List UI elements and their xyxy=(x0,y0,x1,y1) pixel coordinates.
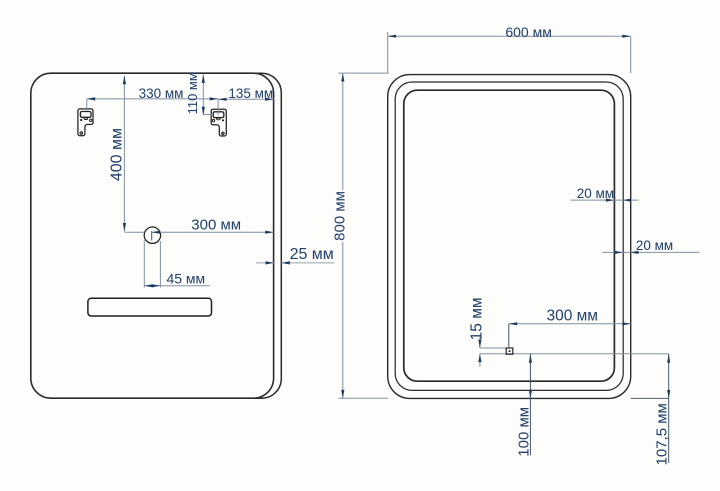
svg-text:300 мм: 300 мм xyxy=(191,217,241,234)
svg-text:135 мм: 135 мм xyxy=(228,86,273,101)
svg-text:800 мм: 800 мм xyxy=(332,191,349,241)
svg-text:20 мм: 20 мм xyxy=(636,238,673,253)
svg-text:400 мм: 400 мм xyxy=(109,128,126,181)
svg-text:20 мм: 20 мм xyxy=(577,186,614,201)
svg-text:330 мм: 330 мм xyxy=(139,86,184,101)
svg-text:600 мм: 600 мм xyxy=(505,24,552,40)
svg-text:107,5 мм: 107,5 мм xyxy=(654,403,671,465)
svg-text:15 мм: 15 мм xyxy=(468,297,485,340)
svg-text:45 мм: 45 мм xyxy=(166,271,205,287)
svg-text:25 мм: 25 мм xyxy=(290,246,334,263)
svg-text:100 мм: 100 мм xyxy=(515,407,532,457)
svg-text:110 мм: 110 мм xyxy=(185,72,200,114)
svg-text:300 мм: 300 мм xyxy=(546,308,597,325)
